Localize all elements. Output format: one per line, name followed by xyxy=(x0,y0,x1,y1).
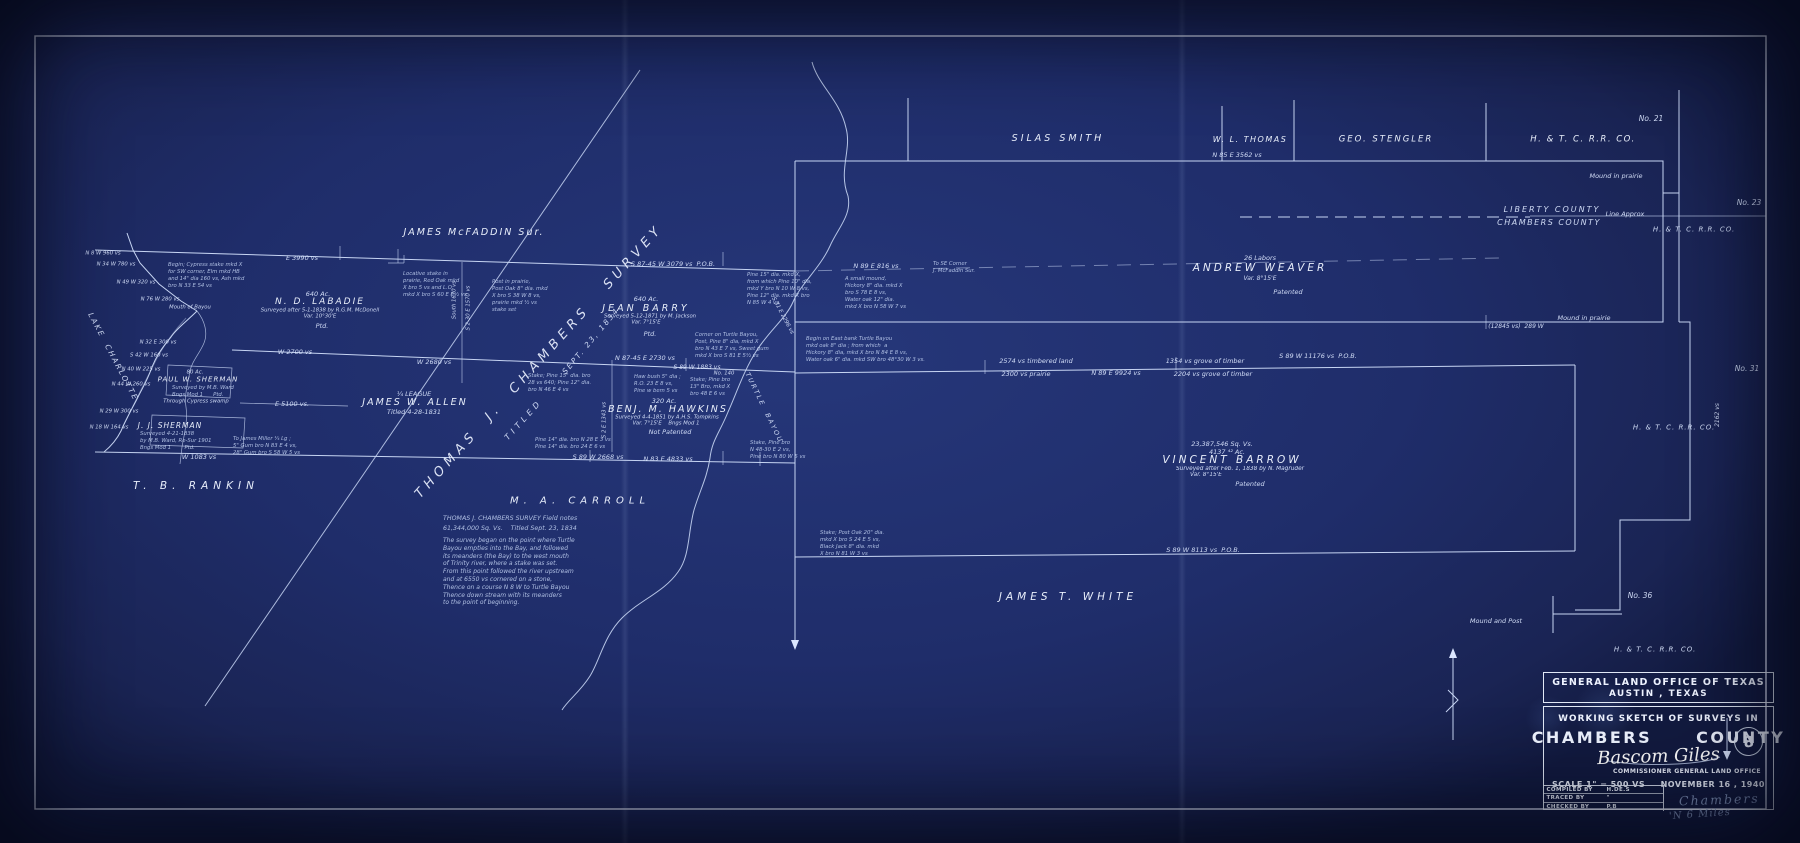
map-annotation: N 85 E 3562 vs xyxy=(1212,151,1261,159)
map-annotation: W 2680 vs xyxy=(417,358,451,366)
agency-box: GENERAL LAND OFFICE OF TEXAS AUSTIN , TE… xyxy=(1543,672,1774,703)
map-annotation: (12845 vs) 289 W xyxy=(1488,323,1543,331)
map-annotation: Stake; Pine 15" dia. bro 28 vs 640; Pine… xyxy=(528,373,591,394)
tract-label-paul-w-sherman: PAUL W. SHERMAN xyxy=(158,375,239,384)
map-annotation: S 89 W 2668 vs xyxy=(573,453,624,461)
map-annotation: Mouth of Bayou xyxy=(169,305,211,312)
map-annotation: H. & T. C. R.R. CO. xyxy=(1614,645,1696,654)
map-annotation: N 34 W 780 vs xyxy=(97,262,136,269)
credit-value: H.DE.S xyxy=(1605,787,1630,793)
pencil-note-county: Chambers xyxy=(1679,791,1760,809)
map-annotation: Through Cypress swamp xyxy=(163,399,228,406)
tract-label-jj-sherman: J. J. SHERMAN xyxy=(138,421,203,431)
map-annotation: Stake; Pine bro 13" Bro, mkd X bro 48 E … xyxy=(690,377,730,398)
map-annotation: N 29 W 300 vs xyxy=(100,409,139,416)
map-annotation: Corner on Turtle Bayou, Post, Pine 8" di… xyxy=(695,332,769,360)
map-annotation: E 3990 vs xyxy=(286,254,318,262)
map-annotation: N 49 W 320 vs xyxy=(117,280,156,287)
tract-label-james-mcfaddin: JAMES McFADDIN Sur. xyxy=(403,227,544,239)
credit-row: COMPILED BYH.DE.S xyxy=(1543,786,1663,795)
map-annotation: Var. 10°30'E xyxy=(304,314,337,321)
map-annotation: Haw bush 5" dia ; R.O. 23 E 8 vs, Pine w… xyxy=(634,374,681,395)
map-annotation: 2204 vs grove of timber xyxy=(1174,370,1252,378)
tract-label-andrew-weaver: ANDREW WEAVER xyxy=(1193,262,1328,276)
map-annotation: N 76 W 280 vs xyxy=(141,297,180,304)
agency-name: GENERAL LAND OFFICE OF TEXAS xyxy=(1552,677,1765,688)
title-block: GENERAL LAND OFFICE OF TEXAS AUSTIN , TE… xyxy=(1543,672,1774,813)
map-annotation: THOMAS J. CHAMBERS SURVEY Field notes xyxy=(443,515,577,523)
map-annotation: 2162 vs xyxy=(1714,403,1722,427)
map-annotation: No. 36 xyxy=(1628,591,1653,601)
tract-label-tb-rankin: T. B. RANKIN xyxy=(133,480,259,494)
map-annotation: Stake, Pine bro N 48-30 E 2 vs, Pine bro… xyxy=(750,440,805,461)
map-annotation: H. & T. C. R.R. CO. xyxy=(1653,225,1735,234)
tract-label-geo-stengler: GEO. STENGLER xyxy=(1339,134,1434,145)
map-annotation: N 44 W 260 vs xyxy=(112,382,151,389)
tract-label-ma-carroll: M. A. CARROLL xyxy=(510,495,650,508)
map-annotation: Pine 14" dia. bro N 28 E 3 vs Pine 14" d… xyxy=(535,437,611,451)
map-annotation: Stake; Post Oak 20" dia. mkd X bro S 24 … xyxy=(820,530,884,558)
map-annotation: Surveyed by M.B. Ward Bngs Mod 1 Ptd. xyxy=(172,385,234,399)
credit-value: " xyxy=(1605,795,1610,801)
map-annotation: Patented xyxy=(1273,288,1302,296)
map-annotation: N 40 W 225 vs xyxy=(122,367,161,374)
map-annotation: Ptd. xyxy=(644,330,657,338)
map-annotation: Pine 15" dia. mkd X, from which Pine 10"… xyxy=(747,272,812,306)
map-annotation: A small mound, Hickory 8" dia. mkd X bro… xyxy=(845,276,906,310)
map-annotation: 2300 vs prairie xyxy=(1002,370,1051,378)
credit-label: CHECKED BY xyxy=(1543,804,1605,810)
map-annotation: N 8 W 960 vs xyxy=(85,251,120,258)
map-annotation: Patented xyxy=(1235,480,1264,488)
sheet-number: 8 xyxy=(1742,732,1755,751)
map-annotation: The survey began on the point where Turt… xyxy=(443,537,575,607)
map-annotation: Mound in prairie xyxy=(1589,172,1642,180)
tract-label-htc-rr-top: H. & T. C. R.R. CO. xyxy=(1530,134,1635,145)
tract-label-james-t-white: JAMES T. WHITE xyxy=(999,591,1137,605)
map-annotation: W 1083 vs xyxy=(182,453,216,461)
map-annotation: 26 Labors xyxy=(1244,254,1276,262)
map-annotation: 2574 vs timbered land xyxy=(999,357,1073,365)
county-name: CHAMBERS xyxy=(1532,728,1652,747)
credit-row: CHECKED BYP.B xyxy=(1543,803,1663,811)
map-annotation: Surveyed 4-21-1838 by M.B. Ward, Re-Sur … xyxy=(140,431,211,452)
map-annotation: S 87-45 W 3079 vs P.O.B. xyxy=(631,260,715,268)
county-label-chambers: CHAMBERS COUNTY xyxy=(1497,218,1601,228)
map-date: NOVEMBER 16 , 1940 xyxy=(1661,780,1765,789)
map-annotation: Line Approx xyxy=(1606,210,1645,218)
credit-value: P.B xyxy=(1605,804,1618,810)
map-annotation: No. 31 xyxy=(1735,364,1760,374)
agency-city: AUSTIN , TEXAS xyxy=(1609,689,1708,699)
credit-label: COMPILED BY xyxy=(1543,787,1605,793)
map-annotation: N 89 E 9924 vs xyxy=(1091,369,1140,377)
map-annotation: E 5100 vs. xyxy=(275,400,309,408)
map-annotation: Begin on East bank Turtle Bayou mkd oak … xyxy=(806,336,925,364)
map-annotation: To SE Corner J. McFaddin Sur. xyxy=(933,261,975,275)
map-annotation: Mound and Post xyxy=(1470,617,1522,625)
map-annotation: S 89 W 8113 vs P.O.B. xyxy=(1166,546,1240,554)
map-annotation: Begin; Cypress stake mkd X for SW corner… xyxy=(168,262,244,290)
map-annotation: S 89 W 11176 vs P.O.B. xyxy=(1279,352,1357,360)
map-annotation: H. & T. C. R.R. CO. xyxy=(1633,423,1715,432)
map-annotation: 61,344,000 Sq. Vs. Titled Sept. 23, 1834 xyxy=(443,525,577,533)
map-annotation: No. 23 xyxy=(1737,198,1762,208)
map-annotation: N 87-45 E 2730 vs xyxy=(615,354,675,362)
map-annotation: Var. 7°15'E xyxy=(631,320,660,327)
survey-lines xyxy=(0,0,1800,843)
map-annotation: S 42 W 160 vs xyxy=(130,353,168,360)
map-annotation: N 89 E 816 vs xyxy=(853,262,898,270)
map-annotation: N 83 E 4833 vs xyxy=(643,455,692,463)
map-annotation: Titled 4-28-1831 xyxy=(387,408,441,416)
map-annotation: South 1670 vs xyxy=(452,281,459,319)
tract-label-wl-thomas: W. L. THOMAS xyxy=(1213,135,1288,145)
map-annotation: N 18 W 164 vs xyxy=(90,425,129,432)
credit-label: TRACED BY xyxy=(1543,795,1605,801)
map-annotation: 1354 vs grove of timber xyxy=(1166,357,1244,365)
map-annotation: W 2700 vs xyxy=(278,348,312,356)
map-annotation: Var. 7°15'E Bngs Mod 1 xyxy=(633,421,700,428)
map-annotation: Var. 8°15'E xyxy=(1190,472,1222,480)
map-annotation: Not Patented xyxy=(649,428,692,436)
tract-label-silas-smith: SILAS SMITH xyxy=(1012,133,1105,145)
county-label-liberty: LIBERTY COUNTY xyxy=(1504,205,1601,215)
credit-row: TRACED BY" xyxy=(1543,794,1663,803)
map-annotation: Post in prairie, Post Oak 8" dia. mkd X … xyxy=(492,279,548,313)
sheet-frame xyxy=(35,36,1766,809)
map-annotation: To James Miller ¼ Lg ; 5" Gum bro N 83 E… xyxy=(233,436,300,457)
blueprint-sheet: SILAS SMITHW. L. THOMASGEO. STENGLERH. &… xyxy=(0,0,1800,843)
credits-table: COMPILED BYH.DE.STRACED BY"CHECKED BYP.B xyxy=(1543,785,1664,811)
map-annotation: N 32 E 300 vs xyxy=(140,340,177,347)
map-annotation: Mound in prairie xyxy=(1557,314,1610,322)
map-annotation: Var. 8°15'E xyxy=(1243,275,1276,283)
map-annotation: S 2 E 1343 vs xyxy=(602,402,609,438)
map-annotation: S 2-30 E 1570 vs xyxy=(466,286,473,331)
map-annotation: No. 21 xyxy=(1639,114,1664,124)
map-annotation: Ptd. xyxy=(316,322,329,330)
sketch-title: WORKING SKETCH OF SURVEYS IN xyxy=(1544,714,1773,724)
